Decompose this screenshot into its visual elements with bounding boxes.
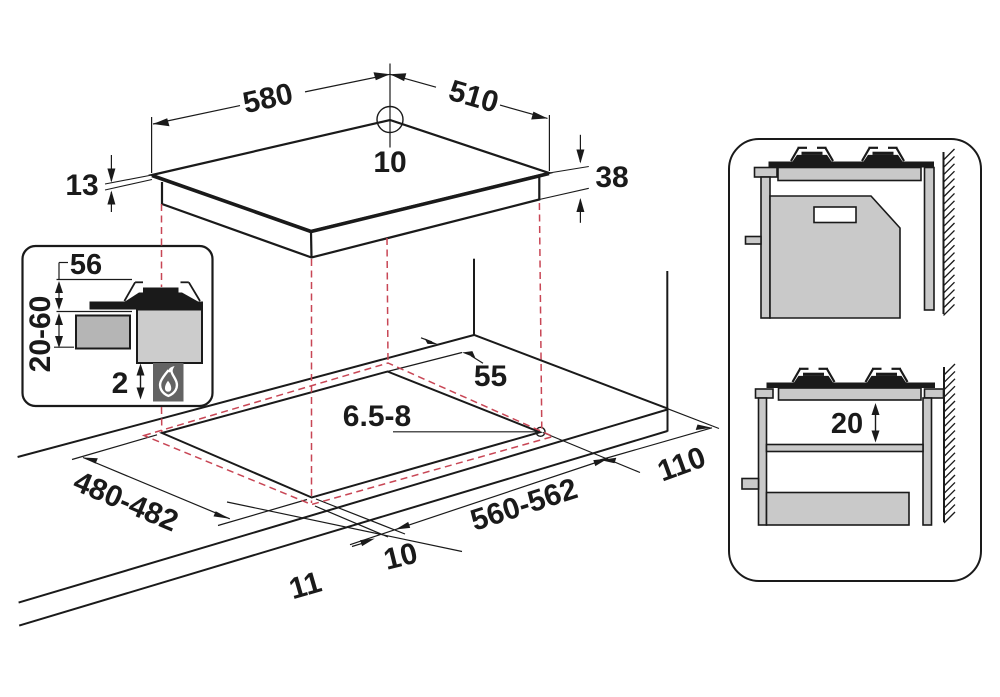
svg-text:55: 55 xyxy=(474,360,507,393)
svg-text:13: 13 xyxy=(65,169,98,202)
svg-text:56: 56 xyxy=(70,249,102,281)
svg-text:20-60: 20-60 xyxy=(24,296,57,373)
svg-text:38: 38 xyxy=(595,161,628,194)
svg-text:10: 10 xyxy=(373,146,406,179)
svg-text:6.5-8: 6.5-8 xyxy=(343,400,411,433)
svg-text:2: 2 xyxy=(112,367,129,400)
svg-text:20: 20 xyxy=(831,408,863,440)
